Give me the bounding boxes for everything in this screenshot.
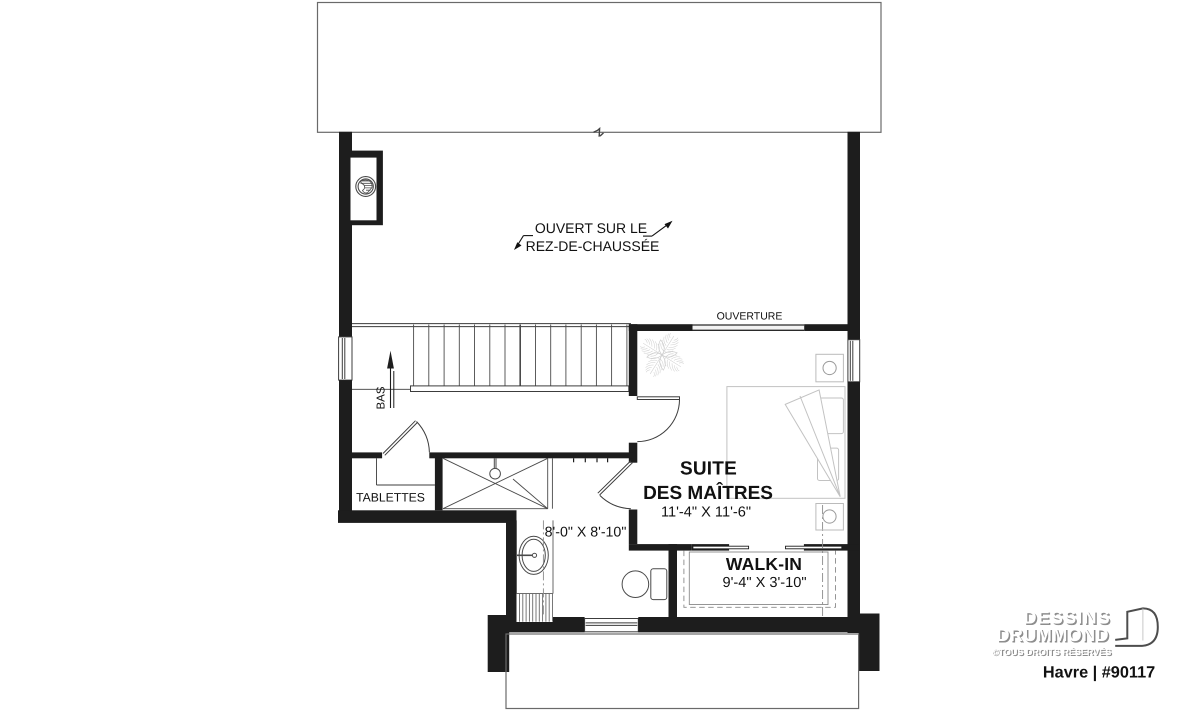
svg-text:REZ-DE-CHAUSSÉE: REZ-DE-CHAUSSÉE [526,238,660,254]
svg-text:BAS: BAS [376,386,388,409]
svg-text:8'-0" X 8'-10": 8'-0" X 8'-10" [545,525,627,541]
svg-text:DRUMMOND: DRUMMOND [996,625,1109,645]
svg-text:TABLETTES: TABLETTES [356,491,425,505]
svg-text:11'-4" X 11'-6": 11'-4" X 11'-6" [661,505,751,521]
svg-text:Havre | #90117: Havre | #90117 [1043,663,1155,681]
svg-text:OUVERTURE: OUVERTURE [717,311,783,323]
svg-text:SUITE: SUITE [680,459,737,480]
svg-text:OUVERT SUR LE: OUVERT SUR LE [535,220,647,236]
svg-text:DES MAÎTRES: DES MAÎTRES [643,481,773,504]
svg-text:©TOUS DROITS RÉSERVÉS: ©TOUS DROITS RÉSERVÉS [992,647,1111,657]
svg-text:WALK-IN: WALK-IN [726,554,802,574]
svg-text:9'-4" X 3'-10": 9'-4" X 3'-10" [722,575,806,591]
